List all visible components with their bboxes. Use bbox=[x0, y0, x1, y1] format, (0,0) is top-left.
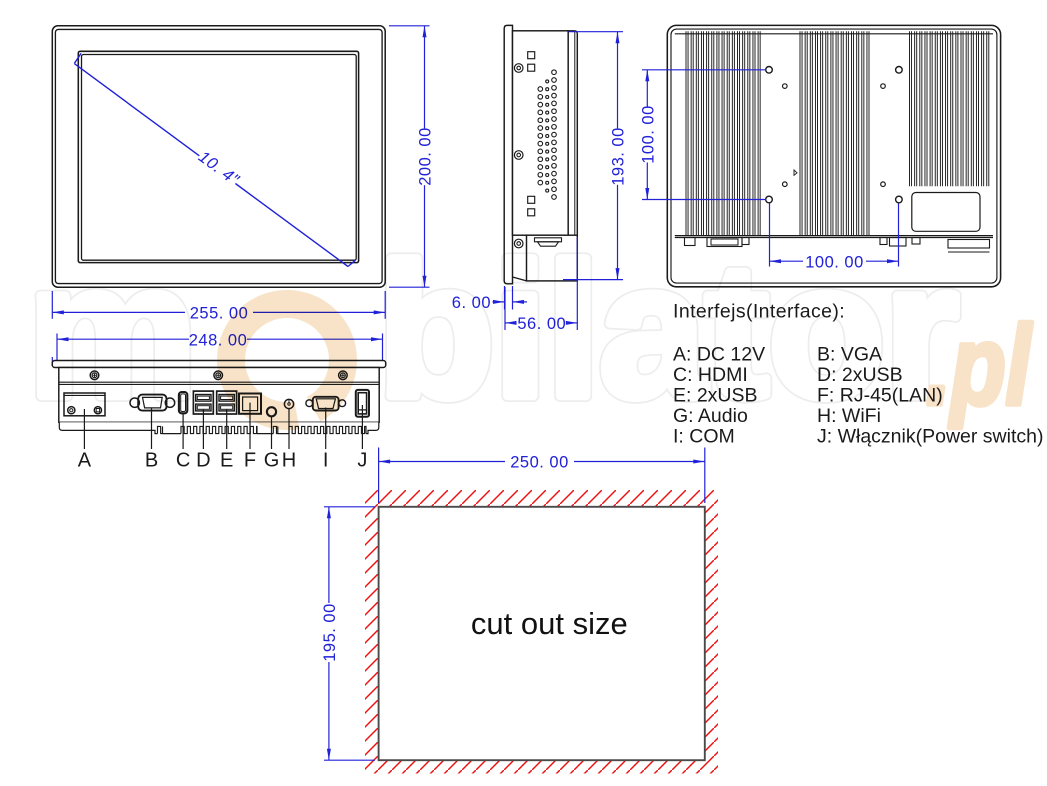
svg-text:195. 00: 195. 00 bbox=[321, 603, 339, 662]
svg-text:I: I bbox=[323, 450, 329, 472]
svg-text:C: C bbox=[176, 450, 190, 472]
svg-text:F: F bbox=[244, 450, 256, 472]
svg-text:m: m bbox=[28, 225, 197, 437]
svg-text:200. 00: 200. 00 bbox=[417, 127, 435, 186]
svg-text:cut out size: cut out size bbox=[471, 606, 628, 641]
svg-text:193. 00: 193. 00 bbox=[610, 127, 628, 186]
svg-text:B: B bbox=[145, 450, 158, 472]
svg-text:bilator: bilator bbox=[378, 225, 959, 437]
svg-text:E: E bbox=[220, 450, 233, 472]
svg-text:G: G bbox=[264, 450, 280, 472]
svg-text:H: H bbox=[282, 450, 296, 472]
svg-text:100. 00: 100. 00 bbox=[639, 105, 657, 164]
svg-text:A: A bbox=[78, 450, 92, 472]
svg-text:D: D bbox=[196, 450, 210, 472]
svg-text:J: J bbox=[357, 450, 367, 472]
svg-text:.pl: .pl bbox=[926, 304, 1032, 429]
svg-text:250. 00: 250. 00 bbox=[510, 454, 569, 472]
